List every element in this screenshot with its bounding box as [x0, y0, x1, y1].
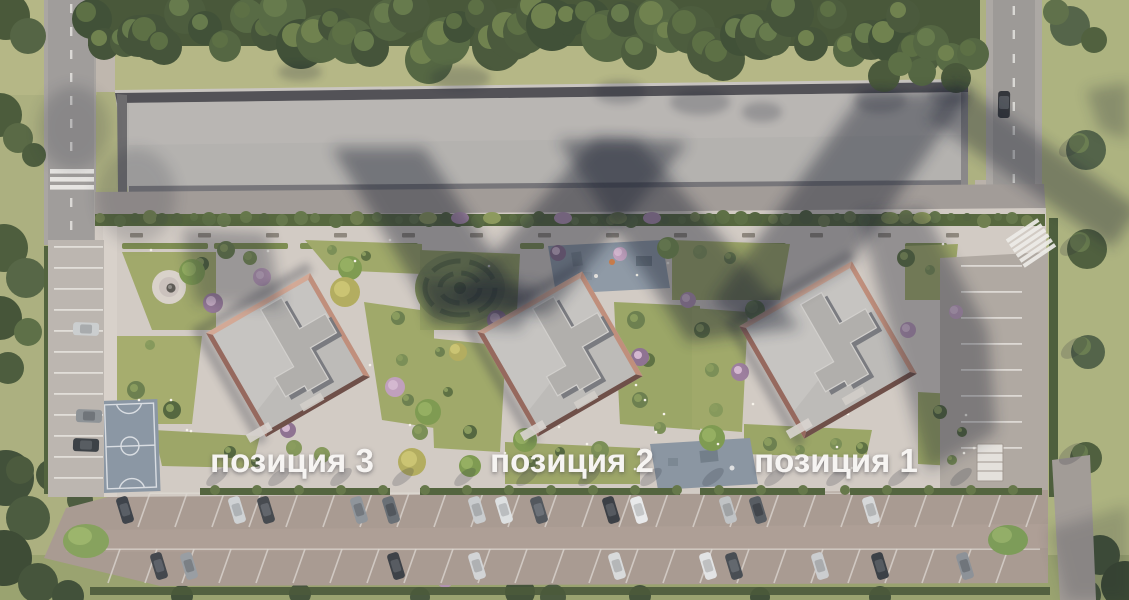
svg-text:позиция 3: позиция 3 [210, 442, 374, 479]
svg-text:позиция 2: позиция 2 [490, 442, 654, 479]
svg-text:позиция 1: позиция 1 [754, 442, 918, 479]
